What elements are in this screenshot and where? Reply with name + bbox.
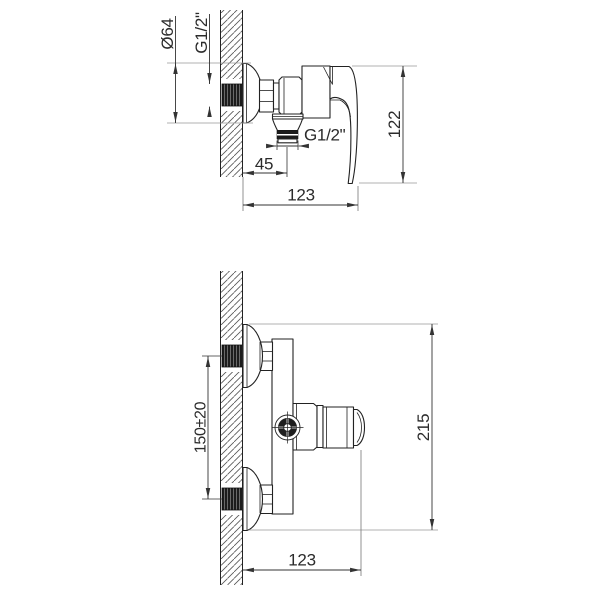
dim-label-escutcheon-diameter: Ø64 <box>158 18 177 49</box>
side-view: Ø64 G1/2" 122 G1/2" <box>158 10 417 211</box>
dim-label-front-depth: 123 <box>288 551 315 570</box>
front-view-wall <box>221 271 243 585</box>
dim-label-shower-outlet-thread: G1/2" <box>304 126 346 145</box>
dim-label-body-height: 122 <box>385 111 404 138</box>
technical-drawing-canvas: Ø64 G1/2" 122 G1/2" <box>0 0 600 600</box>
dim-label-overall-height: 215 <box>414 414 433 441</box>
front-view: 150±20 215 123 <box>193 271 439 585</box>
front-view-inlet-pipe-top <box>222 345 243 367</box>
dim-label-wall-inlet-thread: G1/2" <box>192 12 211 54</box>
dim-label-side-depth: 123 <box>287 186 314 205</box>
front-view-faucet-body <box>243 325 365 531</box>
front-view-inlet-pipe-bottom <box>222 488 243 510</box>
shower-mixer-installation-drawing: Ø64 G1/2" 122 G1/2" <box>0 0 600 600</box>
side-view-inlet-pipe <box>222 84 243 106</box>
dim-label-outlet-offset: 45 <box>255 155 273 174</box>
dim-label-inlet-spacing: 150±20 <box>193 401 210 453</box>
